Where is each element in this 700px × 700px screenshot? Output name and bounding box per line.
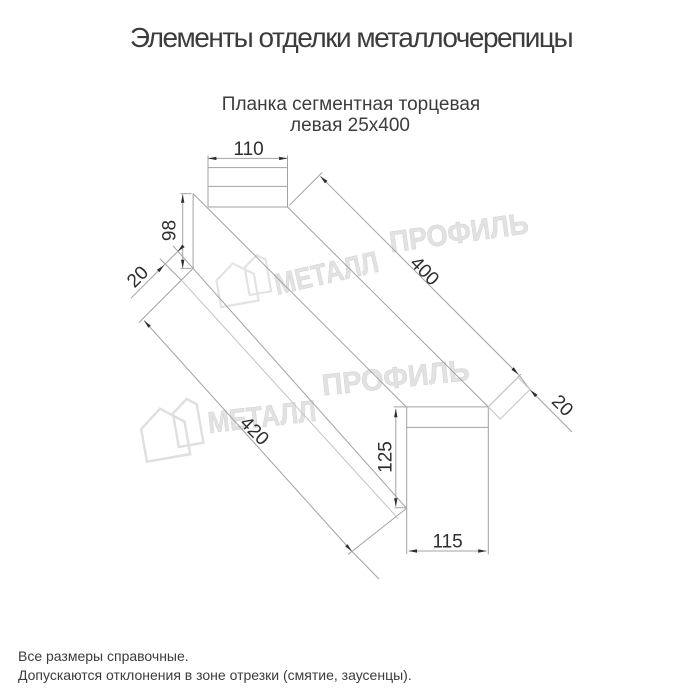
svg-text:левая 25х400: левая 25х400 bbox=[290, 115, 410, 136]
svg-text:110: 110 bbox=[233, 139, 263, 160]
svg-text:115: 115 bbox=[432, 532, 462, 553]
svg-text:Все размеры справочные.: Все размеры справочные. bbox=[18, 648, 189, 664]
svg-text:98: 98 bbox=[160, 220, 181, 241]
svg-text:125: 125 bbox=[376, 441, 397, 473]
svg-text:Планка сегментная торцевая: Планка сегментная торцевая bbox=[222, 94, 480, 115]
svg-text:Элементы отделки металлочерепи: Элементы отделки металлочерепицы bbox=[130, 22, 573, 53]
svg-text:Допускаются отклонения в зоне: Допускаются отклонения в зоне отрезки (с… bbox=[18, 667, 412, 683]
